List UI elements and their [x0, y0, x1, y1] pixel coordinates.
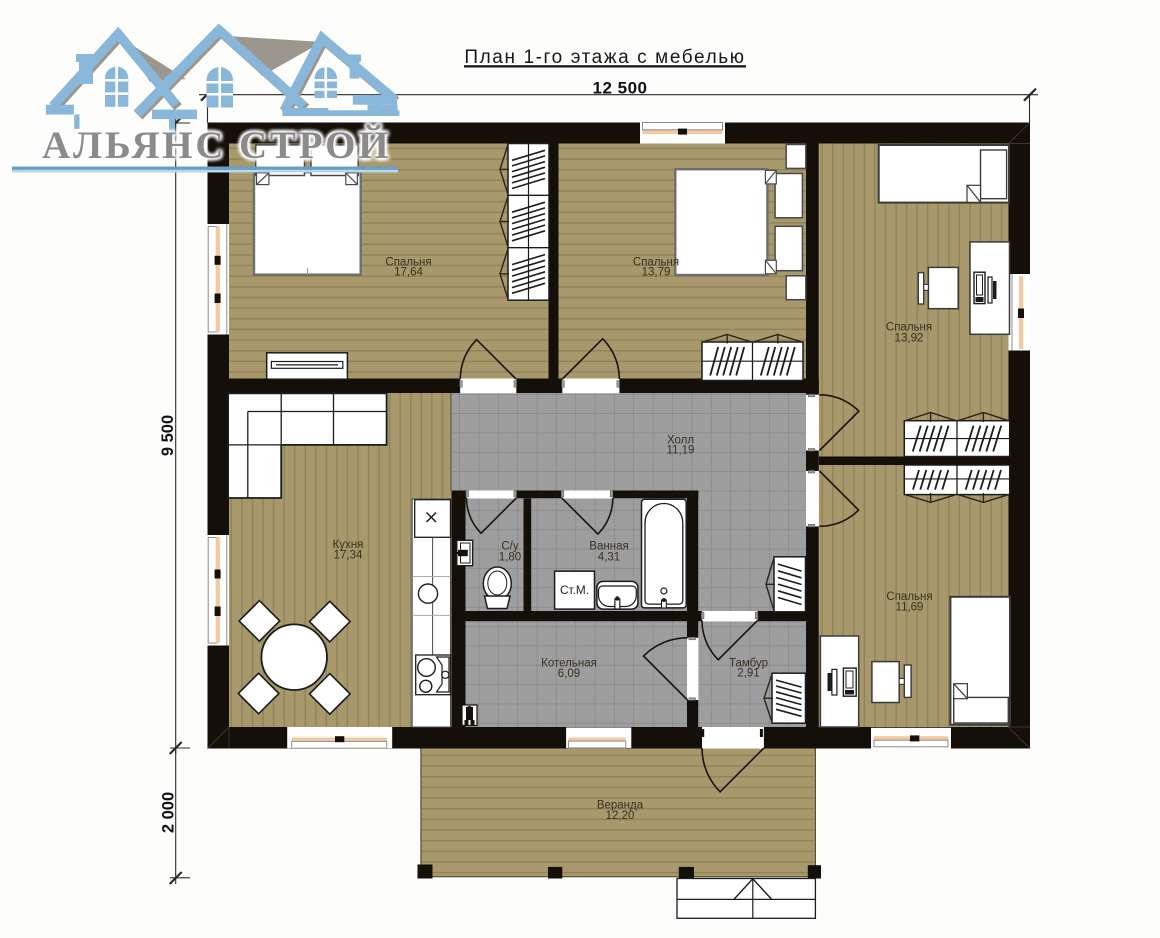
svg-text:17,64: 17,64 [394, 266, 423, 278]
svg-text:АЛЬЯНС СТРОЙ: АЛЬЯНС СТРОЙ [42, 123, 391, 167]
svg-text:1,80: 1,80 [499, 552, 521, 564]
svg-text:4,31: 4,31 [598, 552, 620, 564]
svg-text:12 500: 12 500 [593, 79, 648, 98]
svg-text:13,92: 13,92 [895, 333, 924, 345]
svg-text:11,19: 11,19 [667, 445, 695, 457]
svg-text:12,20: 12,20 [606, 810, 635, 822]
svg-text:2 000: 2 000 [160, 792, 178, 833]
svg-text:6,09: 6,09 [558, 668, 580, 680]
svg-text:13,79: 13,79 [642, 266, 671, 278]
svg-text:17,34: 17,34 [334, 549, 363, 561]
svg-text:2,91: 2,91 [737, 668, 759, 680]
svg-text:11,69: 11,69 [896, 601, 924, 613]
svg-text:План 1-го этажа с мебелью: План 1-го этажа с мебелью [464, 47, 745, 68]
svg-text:9 500: 9 500 [159, 415, 177, 456]
svg-text:Ст.М.: Ст.М. [560, 583, 589, 597]
